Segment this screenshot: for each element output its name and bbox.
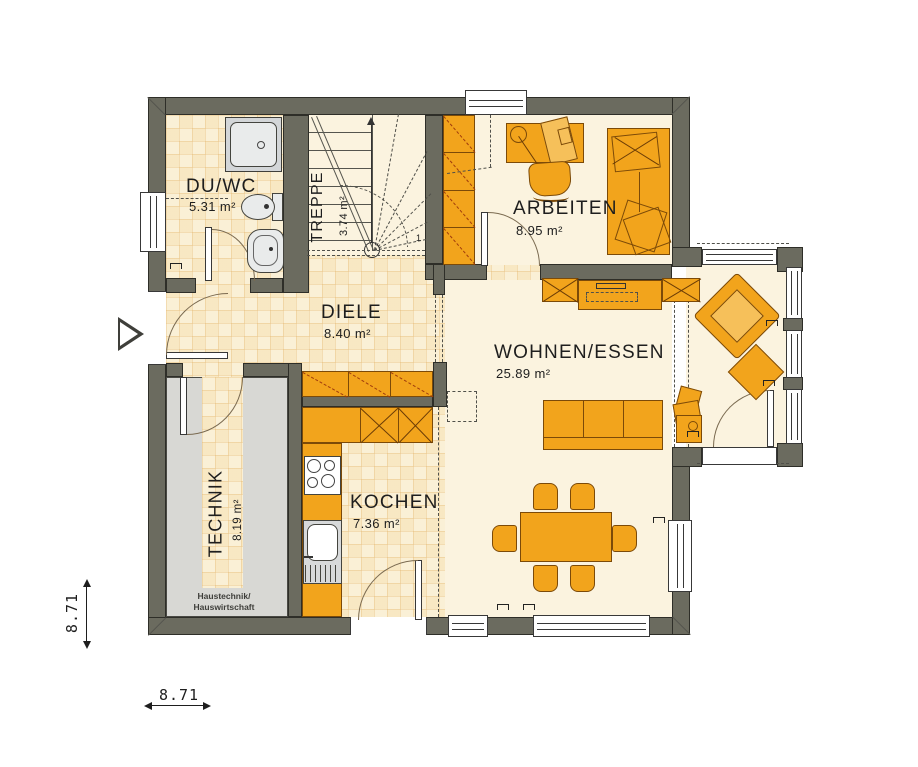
outlet-symbol [687,431,699,437]
wall-kochen-top [302,396,433,407]
dimension-vertical-text: 8.71 [63,590,81,636]
window-glass [706,254,773,261]
room-area-treppe: 3.74 m² [338,182,350,250]
sofa-divider [583,400,584,437]
window-glass [452,623,484,630]
floor-plan-canvas: { "rooms": { "duwc": {"name": "DU/WC", "… [0,0,918,767]
technik-door-leaf [180,377,187,435]
dining-chair [612,525,637,552]
stove-burner [321,474,335,488]
bay-opening-dashed-left [674,300,675,447]
sofa-seat-line [543,437,663,438]
arbeiten-window-dashline [490,115,491,167]
tv-dashed-outline [586,292,638,302]
kitchen-tap [304,556,313,558]
window-bay-right-3 [786,389,802,444]
wall-diele-wohnen-stub [433,264,445,295]
window-bay-top [702,249,777,265]
wall-technik-kochen [288,363,302,617]
outlet-symbol [763,380,775,386]
room-area-technik: 8.19 m² [232,486,244,554]
entrance-arrow-inner [120,322,138,346]
diele-wohnen-dashed [442,295,443,362]
outlet-symbol [523,604,535,610]
stair-walk-line [371,125,372,243]
desk-lamp [510,126,527,143]
dining-chair [492,525,517,552]
entrance-opening [148,291,166,365]
wall-right-upper [672,97,690,262]
window-glass [791,271,798,315]
dimension-arrow-down [83,641,91,649]
bay-roof-dashed-top [697,243,789,244]
room-label-wohnen: WOHNEN/ESSEN [494,342,665,364]
dimension-arrow-up [83,579,91,587]
wall-duwc-bottom-left [166,278,196,293]
room-area-wohnen: 25.89 m² [496,366,551,381]
window-bottom-small [448,615,488,637]
room-area-arbeiten: 8.95 m² [516,223,563,238]
room-area-kochen: 7.36 m² [353,516,400,531]
window-bay-right-1 [786,267,802,319]
window-bay-right-2 [786,330,802,378]
wall-treppe-arbeiten [425,115,443,264]
wardrobe-divider [443,190,475,191]
stove-burner [307,459,321,473]
room-label-kochen: KOCHEN [350,492,439,514]
room-label-arbeiten: ARBEITEN [513,198,618,220]
stove-burner [307,477,318,488]
outlet-symbol [653,517,665,523]
outlet-symbol [170,263,182,269]
room-label-treppe: TREPPE [309,162,327,252]
dining-chair [570,565,595,592]
technik-note-line1: Haustechnik/ [178,591,270,602]
window-glass [150,196,157,248]
dining-table [520,512,612,562]
window-glass [791,393,798,440]
dimension-arrow-left [144,702,152,710]
wall-left [148,97,166,635]
window-arbeiten-top [465,90,527,115]
window-right [668,520,692,592]
bay-door-opening [702,447,777,465]
kitchen-cabinet-divider [398,407,399,443]
dimension-horizontal-text: 8.71 [156,686,202,704]
sofa [543,400,663,450]
dining-chair [533,483,558,510]
sink-basin [253,235,278,266]
window-bottom-large [533,615,650,637]
wall-top [148,97,690,115]
shower-tray [230,122,277,167]
dishwasher [305,565,339,582]
duwc-door-leaf [205,227,212,281]
toilet-drain [264,204,269,209]
window-glass [537,623,646,630]
bay-post-top-left [672,247,702,267]
dimension-arrow-right [203,702,211,710]
stair-cut-line [307,255,425,256]
diele-cabinet-divider [390,371,391,397]
bay-plant-pot-circle [688,421,698,431]
window-glass [469,100,523,107]
wall-technik-top-left [166,363,183,377]
window-glass [791,334,798,374]
wall-diele-wohnen-lower [433,362,447,407]
window-glass [677,524,684,588]
outlet-symbol [497,604,509,610]
wall-duwc-treppe [283,115,309,293]
room-label-diele: DIELE [321,302,382,324]
planned-furniture-dashed [447,391,477,422]
stove-burner [324,460,335,471]
bay-post-bottom-left [672,447,702,467]
dimension-horizontal-line [148,705,207,706]
room-area-diele: 8.40 m² [324,326,371,341]
window-duwc-left [140,192,166,252]
kitchen-cabinet-divider [360,407,361,443]
wardrobe-divider [443,227,475,228]
room-label-technik: TECHNIK [206,464,227,564]
diele-wohnen-dashed [435,295,436,362]
wardrobe-divider [443,152,475,153]
stair-tread [309,150,371,151]
tv [596,283,626,289]
arbeiten-door-leaf [481,212,488,266]
sink-drain [269,247,273,251]
dining-chair [570,483,595,510]
sofa-divider [623,400,624,437]
diele-cabinet-divider [348,371,349,397]
stair-start-number: 1 [416,233,421,243]
room-area-duwc: 5.31 m² [189,199,236,214]
technik-note-line2: Hauswirtschaft [178,602,270,613]
shower-drain [257,141,265,149]
stair-walk-arrow [367,117,375,125]
dimension-vertical-line [86,583,87,645]
dining-chair [533,565,558,592]
room-label-duwc: DU/WC [186,176,256,198]
outlet-symbol [766,320,778,326]
